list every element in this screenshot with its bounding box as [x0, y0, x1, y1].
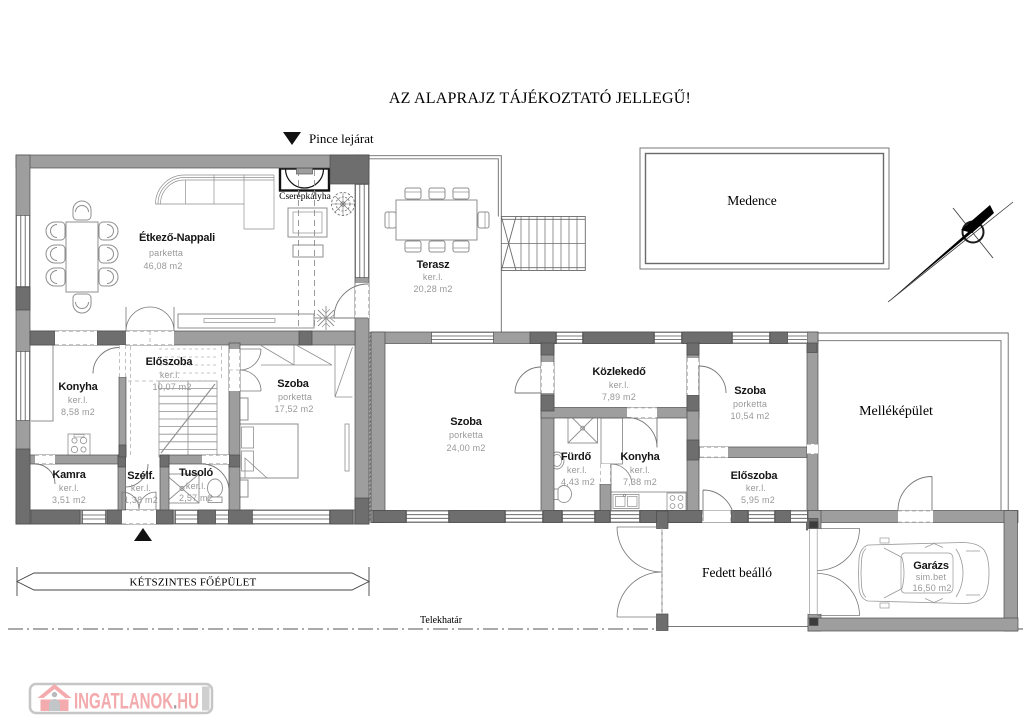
svg-text:KÉTSZINTES FŐÉPÜLET: KÉTSZINTES FŐÉPÜLET: [130, 577, 257, 589]
svg-text:Fedett beálló: Fedett beálló: [702, 565, 772, 580]
svg-text:Cserépkályha: Cserépkályha: [279, 192, 331, 202]
svg-text:16,50 m2: 16,50 m2: [912, 583, 951, 593]
svg-text:Előszoba: Előszoba: [146, 356, 194, 368]
svg-text:Garázs: Garázs: [913, 560, 949, 572]
svg-text:Terasz: Terasz: [417, 259, 451, 271]
svg-text:8,58 m2: 8,58 m2: [61, 407, 95, 417]
svg-text:AZ ALAPRAJZ TÁJÉKOZTATÓ JELLEG: AZ ALAPRAJZ TÁJÉKOZTATÓ JELLEGŰ!: [389, 88, 691, 107]
svg-text:Medence: Medence: [727, 193, 776, 208]
svg-text:20,28 m2: 20,28 m2: [413, 284, 452, 294]
svg-text:INGATLANOK.HU: INGATLANOK.HU: [74, 689, 199, 714]
svg-text:Szoba: Szoba: [450, 416, 482, 428]
svg-text:Konyha: Konyha: [620, 451, 660, 463]
svg-text:24,00 m2: 24,00 m2: [446, 443, 485, 453]
svg-text:7,38 m2: 7,38 m2: [623, 477, 657, 487]
svg-text:ker.l.: ker.l.: [423, 272, 443, 282]
svg-text:parketta: parketta: [149, 248, 183, 258]
svg-text:Közlekedő: Közlekedő: [592, 366, 646, 378]
svg-text:10,07 m2: 10,07 m2: [152, 382, 191, 392]
svg-text:Konyha: Konyha: [58, 381, 98, 393]
svg-text:Szoba: Szoba: [277, 378, 309, 390]
svg-text:7,89 m2: 7,89 m2: [602, 392, 636, 402]
svg-text:17,52 m2: 17,52 m2: [274, 404, 313, 414]
svg-text:Szoba: Szoba: [734, 385, 766, 397]
svg-text:ker.l.: ker.l.: [746, 483, 766, 493]
svg-text:Étkező-Nappali: Étkező-Nappali: [139, 231, 215, 244]
svg-text:5,95 m2: 5,95 m2: [741, 495, 775, 505]
svg-text:sim.bet: sim.bet: [916, 572, 947, 582]
svg-text:46,08 m2: 46,08 m2: [143, 261, 182, 271]
svg-text:ker.l.: ker.l.: [186, 481, 206, 491]
svg-text:10,54 m2: 10,54 m2: [730, 411, 769, 421]
svg-text:ker.l.: ker.l.: [59, 483, 79, 493]
svg-text:ker.l.: ker.l.: [131, 483, 151, 493]
svg-text:Melléképület: Melléképület: [859, 404, 933, 419]
svg-text:ker.l.: ker.l.: [68, 395, 88, 405]
svg-text:Szélf.: Szélf.: [127, 470, 155, 482]
svg-text:Kamra: Kamra: [52, 469, 86, 481]
svg-text:Telekhatár: Telekhatár: [420, 615, 463, 626]
svg-text:porketta: porketta: [278, 392, 312, 402]
svg-text:ker.l.: ker.l.: [609, 380, 629, 390]
svg-text:ker.l.: ker.l.: [630, 465, 650, 475]
svg-text:2,57 m2: 2,57 m2: [179, 493, 213, 503]
svg-text:ker.l.: ker.l.: [160, 370, 180, 380]
svg-text:Pince lejárat: Pince lejárat: [309, 131, 374, 146]
svg-text:3,51 m2: 3,51 m2: [52, 495, 86, 505]
svg-text:Fürdő: Fürdő: [561, 451, 592, 463]
svg-text:ker.l.: ker.l.: [567, 465, 587, 475]
svg-text:Tusoló: Tusoló: [179, 467, 214, 479]
svg-text:1,38 m2: 1,38 m2: [124, 495, 158, 505]
svg-text:porketta: porketta: [449, 430, 483, 440]
svg-text:4,43 m2: 4,43 m2: [561, 477, 595, 487]
svg-text:Előszoba: Előszoba: [731, 470, 779, 482]
svg-text:porketta: porketta: [733, 399, 767, 409]
